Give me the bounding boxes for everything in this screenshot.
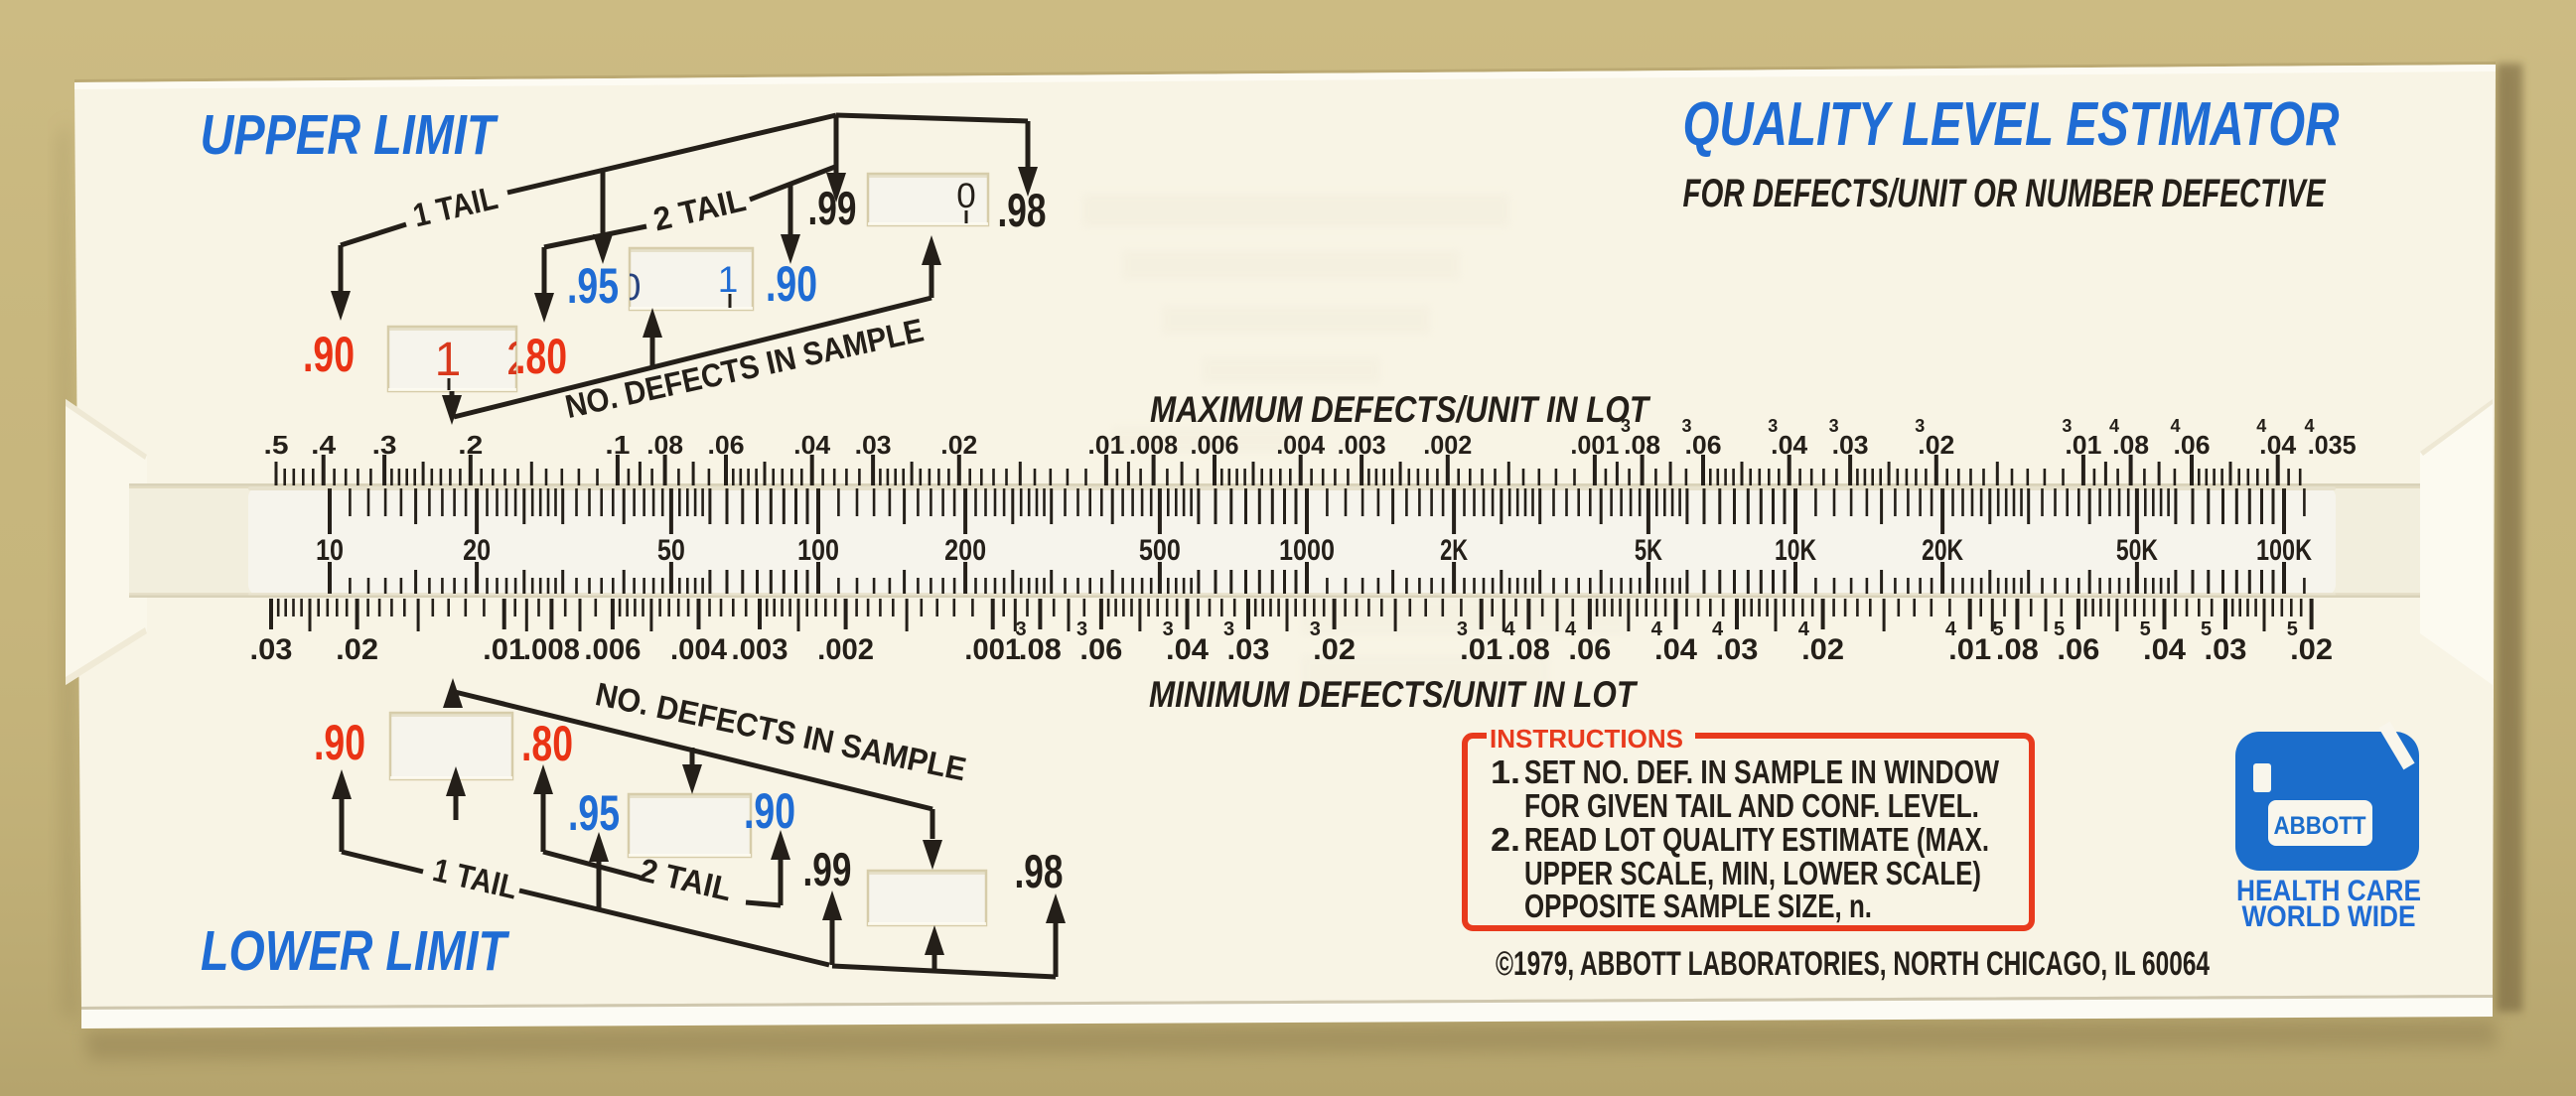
svg-text:.80: .80 [521,716,573,771]
svg-text:.90: .90 [744,783,795,839]
svg-text:2K: 2K [1440,534,1468,567]
svg-text:.01: .01 [1087,430,1124,460]
svg-text:5K: 5K [1635,534,1662,567]
svg-text:.98: .98 [1015,845,1064,897]
svg-text:FOR DEFECTS/UNIT OR NUMBER DEF: FOR DEFECTS/UNIT OR NUMBER DEFECTIVE [1683,172,2327,215]
svg-text:3: 3 [1223,618,1234,640]
svg-text:1: 1 [718,259,739,300]
svg-text:3: 3 [1915,416,1925,436]
svg-text:.3: .3 [372,430,397,460]
svg-text:.5: .5 [264,430,289,460]
svg-text:5: 5 [2140,618,2151,640]
svg-text:3: 3 [1015,618,1026,640]
svg-text:OPPOSITE SAMPLE SIZE, n.: OPPOSITE SAMPLE SIZE, n. [1524,888,1872,924]
svg-text:1.: 1. [1491,753,1520,790]
svg-text:3: 3 [1768,416,1778,436]
svg-text:.08: .08 [646,430,683,460]
svg-text:UPPER SCALE, MIN, LOWER SCALE): UPPER SCALE, MIN, LOWER SCALE) [1524,855,1981,891]
svg-text:LOWER LIMIT: LOWER LIMIT [201,919,509,983]
svg-text:20: 20 [463,534,491,567]
svg-text:.035: .035 [2308,430,2357,460]
svg-text:.003: .003 [732,633,788,666]
svg-text:0: 0 [956,177,975,215]
svg-text:MINIMUM DEFECTS/UNIT IN LOT: MINIMUM DEFECTS/UNIT IN LOT [1149,674,1639,715]
svg-text:.04: .04 [793,430,831,460]
svg-text:©1979, ABBOTT LABORATORIES, NO: ©1979, ABBOTT LABORATORIES, NORTH CHICAG… [1496,945,2210,983]
svg-text:3: 3 [1163,618,1174,640]
svg-text:.98: .98 [998,184,1047,236]
svg-text:4: 4 [2304,416,2314,436]
svg-text:10K: 10K [1775,534,1816,567]
svg-text:QUALITY LEVEL ESTIMATOR: QUALITY LEVEL ESTIMATOR [1683,90,2340,159]
svg-text:.002: .002 [1423,430,1472,460]
svg-text:.004: .004 [670,633,727,666]
svg-text:ABBOTT: ABBOTT [2274,812,2366,840]
svg-text:3: 3 [1681,416,1691,436]
svg-text:INSTRUCTIONS: INSTRUCTIONS [1490,724,1683,753]
svg-text:.006: .006 [584,633,641,666]
svg-text:4: 4 [1945,618,1957,640]
svg-text:100K: 100K [2256,534,2312,567]
svg-text:5: 5 [2054,618,2065,640]
svg-text:5: 5 [2287,618,2298,640]
svg-text:3: 3 [2062,416,2072,436]
svg-text:.01: .01 [483,633,525,666]
svg-text:.004: .004 [1276,430,1326,460]
svg-text:.80: .80 [515,329,567,384]
svg-text:2.: 2. [1491,821,1520,858]
svg-text:.001: .001 [964,633,1021,666]
svg-text:.90: .90 [303,327,355,382]
svg-text:FOR GIVEN TAIL AND CONF. LEVEL: FOR GIVEN TAIL AND CONF. LEVEL. [1524,787,1979,824]
svg-text:.1: .1 [605,430,630,460]
svg-text:1000: 1000 [1279,534,1335,567]
svg-text:4: 4 [2256,416,2266,436]
svg-text:3: 3 [1076,618,1087,640]
svg-text:.03: .03 [855,430,892,460]
svg-text:.2: .2 [458,430,483,460]
svg-text:.02: .02 [336,633,378,666]
svg-text:4: 4 [1651,618,1663,640]
svg-text:.99: .99 [808,182,857,234]
svg-text:.002: .002 [817,633,874,666]
svg-text:.4: .4 [311,430,337,460]
svg-text:4: 4 [1798,618,1810,640]
svg-text:.003: .003 [1338,430,1386,460]
svg-text:.006: .006 [1191,430,1239,460]
svg-text:3: 3 [1457,618,1468,640]
svg-text:10: 10 [316,534,344,567]
svg-text:.95: .95 [568,785,620,841]
svg-text:50: 50 [657,534,685,567]
svg-text:4: 4 [1503,618,1515,640]
svg-text:.90: .90 [314,715,365,770]
svg-text:3: 3 [1829,416,1839,436]
svg-text:.95: .95 [567,258,619,314]
svg-text:.008: .008 [523,633,580,666]
svg-text:100: 100 [797,534,839,567]
svg-text:20K: 20K [1922,534,1963,567]
svg-text:500: 500 [1139,534,1181,567]
svg-text:.001: .001 [1570,430,1619,460]
svg-text:.90: .90 [766,256,817,312]
svg-text:.03: .03 [250,633,293,666]
svg-text:5: 5 [2201,618,2212,640]
svg-text:MAXIMUM DEFECTS/UNIT IN LOT: MAXIMUM DEFECTS/UNIT IN LOT [1150,389,1651,430]
svg-text:WORLD WIDE: WORLD WIDE [2242,900,2416,933]
svg-text:.02: .02 [940,430,977,460]
svg-text:4: 4 [2109,416,2119,436]
svg-text:50K: 50K [2116,534,2158,567]
svg-text:4: 4 [1565,618,1577,640]
svg-text:SET NO. DEF. IN SAMPLE IN WIND: SET NO. DEF. IN SAMPLE IN WINDOW [1524,753,2000,790]
svg-text:4: 4 [1712,618,1724,640]
svg-text:.008: .008 [1129,430,1178,460]
svg-text:READ LOT QUALITY ESTIMATE (MAX: READ LOT QUALITY ESTIMATE (MAX. [1524,821,1989,858]
svg-text:.99: .99 [803,843,852,895]
svg-text:3: 3 [1310,618,1321,640]
svg-text:UPPER LIMIT: UPPER LIMIT [201,103,499,167]
svg-text:4: 4 [2170,416,2180,436]
svg-text:200: 200 [944,534,986,567]
svg-text:5: 5 [1992,618,2003,640]
svg-text:.06: .06 [708,430,745,460]
